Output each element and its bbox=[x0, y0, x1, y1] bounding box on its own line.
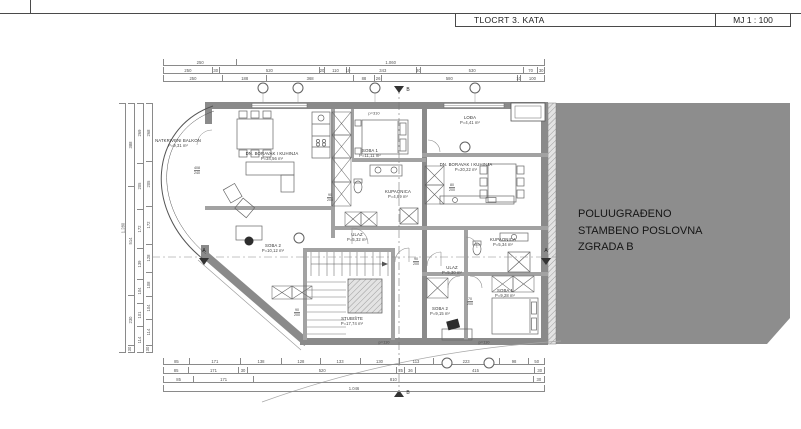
corner-window bbox=[511, 103, 545, 121]
annotation-line-3: ZGRADA B bbox=[578, 239, 703, 256]
lift-shaft bbox=[348, 279, 382, 313]
kitchen-counter-icon-2 bbox=[440, 196, 514, 204]
bed-icon-2 bbox=[492, 298, 538, 334]
annotation-line-1: POLUUGRAĐENO bbox=[578, 206, 703, 223]
kitchen-counter-icon bbox=[312, 112, 330, 158]
diagonal-wall-edge bbox=[198, 260, 301, 350]
floorplan-sheet: { "title_block": { "title": "TLOCRT 3. K… bbox=[0, 0, 801, 429]
desk-icon bbox=[236, 226, 262, 246]
drawing-scale: MJ 1 : 100 bbox=[715, 14, 790, 26]
site-boundary-arc bbox=[262, 341, 561, 402]
bathroom-fixtures-right bbox=[473, 233, 530, 272]
annotation-line-2: STAMBENO POSLOVNA bbox=[578, 223, 703, 240]
door-swings bbox=[352, 140, 482, 288]
section-line-vertical bbox=[394, 86, 404, 397]
title-block: TLOCRT 3. KATA MJ 1 : 100 bbox=[455, 14, 791, 27]
balcony-curve bbox=[161, 106, 214, 259]
bathroom-fixtures-left bbox=[354, 165, 418, 224]
building-annotation: POLUUGRAĐENO STAMBENO POSLOVNA ZGRADA B bbox=[578, 206, 703, 256]
grid-leaders bbox=[263, 93, 475, 102]
bed-icon bbox=[355, 120, 408, 154]
dining-table-icon bbox=[237, 111, 273, 157]
drawing-title: TLOCRT 3. KATA bbox=[456, 14, 715, 26]
